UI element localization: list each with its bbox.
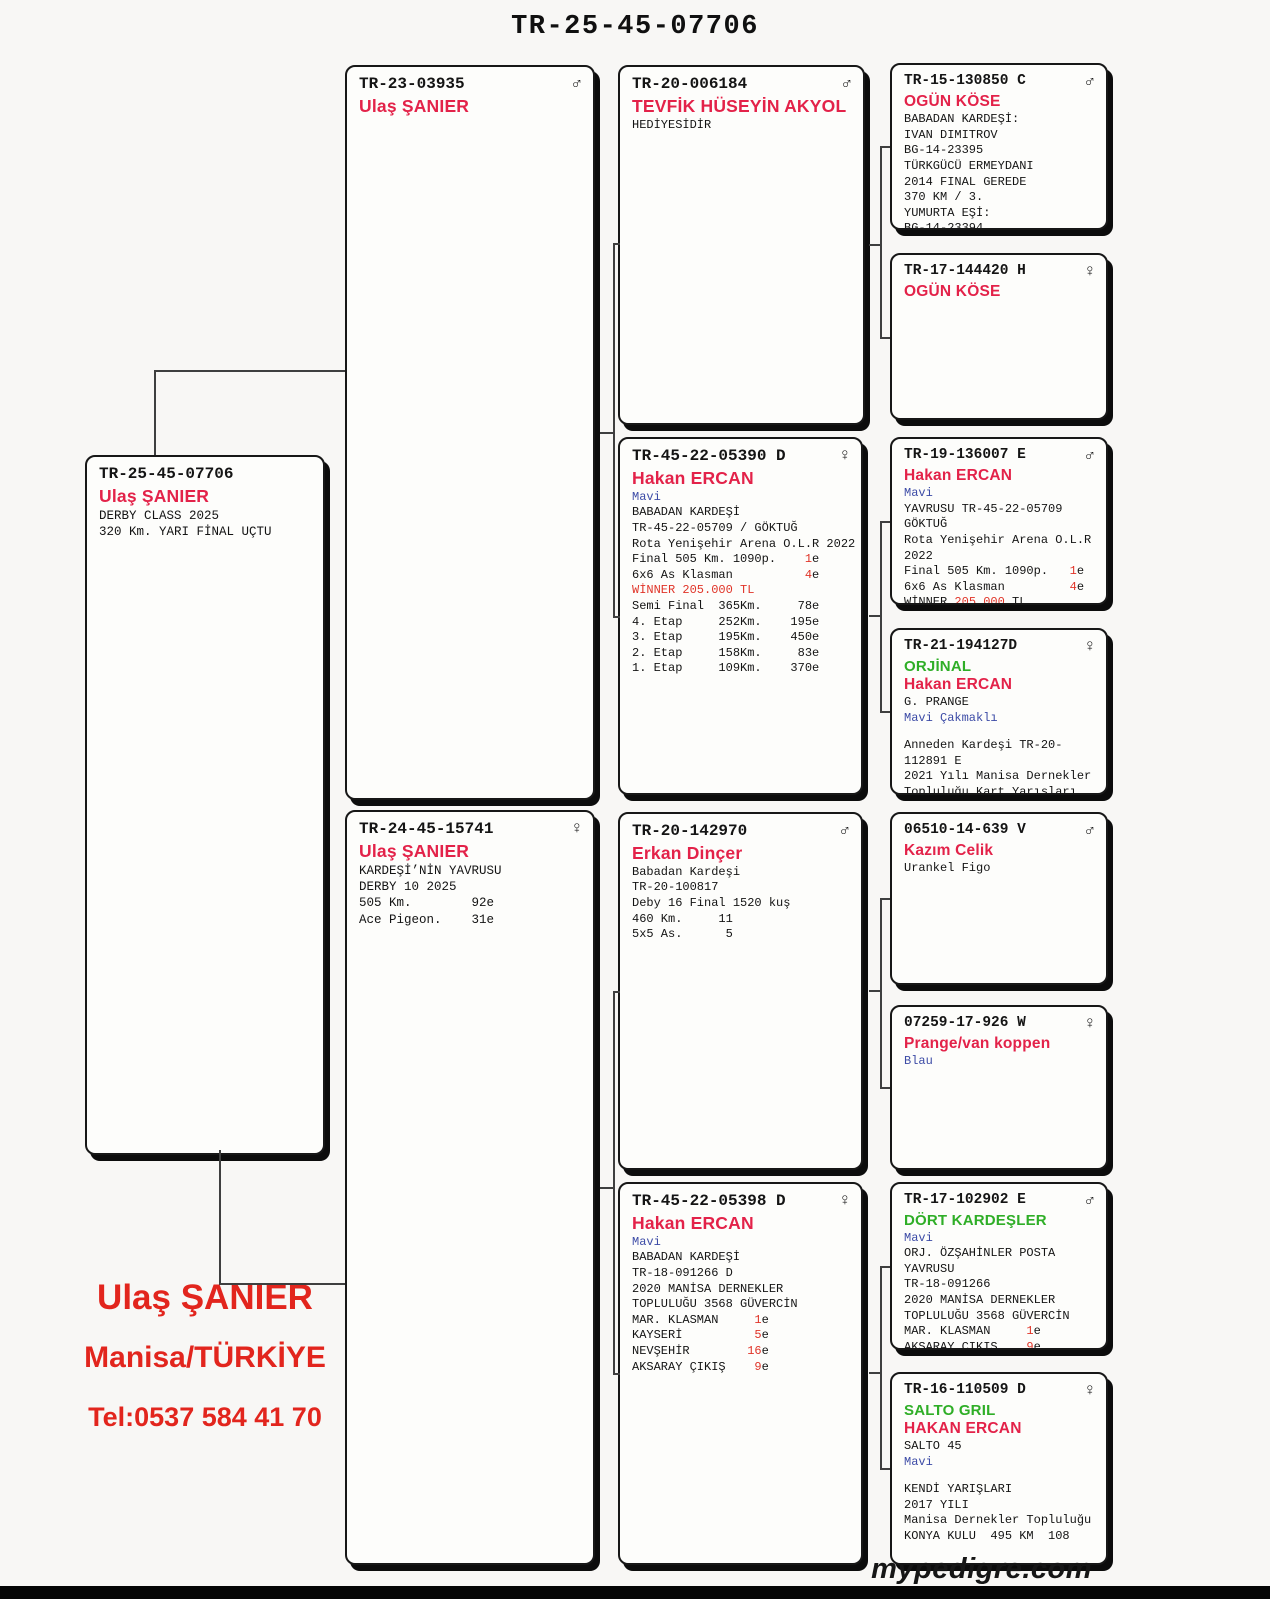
ring-number: TR-45-22-05390 D bbox=[632, 447, 786, 466]
info-line: 3. Etap 195Km. 450e bbox=[632, 630, 856, 646]
info-lines: Urankel Figo bbox=[904, 861, 1101, 877]
name-block: ORJİNALHakan ERCAN bbox=[904, 658, 1101, 694]
info-line: Urankel Figo bbox=[904, 861, 1101, 877]
sex-icon: ♀ bbox=[572, 820, 588, 838]
owner-contact-block: Ulaş ŞANIER Manisa/TÜRKİYE Tel:0537 584 … bbox=[70, 1280, 340, 1431]
connector-line bbox=[880, 898, 882, 1088]
name-block: SALTO GRILHAKAN ERCAN bbox=[904, 1402, 1101, 1438]
name-block: Ulaş ŞANIER bbox=[99, 486, 318, 507]
ring-number: TR-21-194127D bbox=[904, 638, 1017, 655]
name-block: Hakan ERCAN bbox=[632, 468, 856, 489]
ring-number: TR-19-136007 E bbox=[904, 447, 1026, 464]
pigeon-name: TEVFİK HÜSEYİN AKYOL bbox=[632, 96, 858, 117]
info-line: 370 KM / 3. bbox=[904, 190, 1101, 206]
connector-line bbox=[600, 432, 614, 434]
ring-number: TR-24-45-15741 bbox=[359, 820, 493, 839]
pedigree-box-ggp-1: TR-15-130850 C♂ OGÜN KÖSE BABADAN KARDEŞ… bbox=[890, 63, 1108, 230]
sex-icon: ♂ bbox=[1085, 447, 1101, 465]
sex-icon: ♂ bbox=[840, 822, 856, 840]
info-lines: MaviBABADAN KARDEŞİTR-45-22-05709 / GÖKT… bbox=[632, 490, 856, 677]
pigeon-name: HAKAN ERCAN bbox=[904, 1420, 1101, 1438]
info-line: 505 Km. 92e bbox=[359, 895, 588, 911]
name-block: Erkan Dinçer bbox=[632, 843, 856, 864]
info-lines: BABADAN KARDEŞİ:IVAN DIMITROVBG-14-23395… bbox=[904, 112, 1101, 230]
info-line: 320 Km. YARI FİNAL UÇTU bbox=[99, 524, 318, 540]
ring-number: TR-20-142970 bbox=[632, 822, 747, 841]
pigeon-name: Ulaş ŞANIER bbox=[359, 841, 588, 862]
info-line: DERBY CLASS 2025 bbox=[99, 508, 318, 524]
info-line: WİNNER 205.000 TL bbox=[904, 595, 1101, 605]
info-line: AKSARAY ÇIKIŞ 9e bbox=[632, 1360, 856, 1376]
info-line: 1. Etap 109Km. 370e bbox=[632, 661, 856, 677]
info-line: 6x6 As Klasman 4e bbox=[632, 568, 856, 584]
pigeon-name: Erkan Dinçer bbox=[632, 843, 856, 864]
info-lines: KARDEŞİ’NİN YAVRUSUDERBY 10 2025505 Km. … bbox=[359, 863, 588, 928]
info-line: Mavi bbox=[904, 1231, 1101, 1247]
sex-icon: ♀ bbox=[1085, 1382, 1101, 1400]
info-line: Mavi bbox=[632, 490, 856, 506]
info-line: 5x5 As. 5 bbox=[632, 927, 856, 943]
pedigree-box-ggp-8: TR-16-110509 D♀ SALTO GRILHAKAN ERCAN SA… bbox=[890, 1372, 1108, 1565]
sex-icon: ♀ bbox=[840, 447, 856, 465]
owner-location: Manisa/TÜRKİYE bbox=[70, 1343, 340, 1373]
info-line: DERBY 10 2025 bbox=[359, 879, 588, 895]
info-line: 6x6 As Klasman 4e bbox=[904, 580, 1101, 596]
info-lines: MaviYAVRUSU TR-45-22-05709GÖKTUĞRota Yen… bbox=[904, 486, 1101, 605]
info-lines: DERBY CLASS 2025320 Km. YARI FİNAL UÇTU bbox=[99, 508, 318, 541]
connector-line bbox=[613, 616, 620, 618]
connector-line bbox=[880, 1266, 882, 1469]
pedigree-box-sire: TR-23-03935♂ Ulaş ŞANIER bbox=[345, 65, 595, 800]
info-line: BABADAN KARDEŞİ bbox=[632, 1250, 856, 1266]
info-line: AKSARAY ÇIKIŞ 9e bbox=[904, 1340, 1101, 1350]
info-line: HEDİYESİDİR bbox=[632, 118, 858, 134]
info-line: BG-14-23395 bbox=[904, 143, 1101, 159]
owner-phone: Tel:0537 584 41 70 bbox=[70, 1404, 340, 1431]
info-line: TR-20-100817 bbox=[632, 880, 856, 896]
info-line: KARDEŞİ’NİN YAVRUSU bbox=[359, 863, 588, 879]
pedigree-box-ggp-6: 07259-17-926 W♀ Prange/van koppen Blau bbox=[890, 1005, 1108, 1170]
info-line: Semi Final 365Km. 78e bbox=[632, 599, 856, 615]
info-line: Manisa Dernekler Topluluğu bbox=[904, 1513, 1101, 1529]
info-line: ORJ. ÖZŞAHİNLER POSTA bbox=[904, 1246, 1101, 1262]
ring-number: TR-23-03935 bbox=[359, 75, 465, 94]
info-line: IVAN DIMITROV bbox=[904, 128, 1101, 144]
pigeon-name: SALTO GRIL bbox=[904, 1402, 1101, 1420]
sex-icon: ♀ bbox=[1085, 638, 1101, 656]
name-block: TEVFİK HÜSEYİN AKYOL bbox=[632, 96, 858, 117]
pedigree-box-ggp-3: TR-19-136007 E♂ Hakan ERCAN MaviYAVRUSU … bbox=[890, 437, 1108, 605]
pigeon-name: Hakan ERCAN bbox=[632, 468, 856, 489]
info-line bbox=[904, 1470, 1101, 1482]
connector-line bbox=[613, 1373, 620, 1375]
sex-icon: ♂ bbox=[1085, 73, 1101, 91]
info-line: TOPLULUĞU 3568 GÜVERCİN bbox=[904, 1309, 1101, 1325]
pigeon-name: Ulaş ŞANIER bbox=[99, 486, 318, 507]
pigeon-name: OGÜN KÖSE bbox=[904, 93, 1101, 111]
info-line: KAYSERİ 5e bbox=[632, 1328, 856, 1344]
info-line: Final 505 Km. 1090p. 1e bbox=[632, 552, 856, 568]
info-line: 112891 E bbox=[904, 754, 1101, 770]
name-block: OGÜN KÖSE bbox=[904, 283, 1101, 301]
info-line: 2022 bbox=[904, 549, 1101, 565]
info-line: BG-14-23394 bbox=[904, 221, 1101, 230]
info-line: Ace Pigeon. 31e bbox=[359, 912, 588, 928]
sex-icon bbox=[312, 465, 318, 466]
info-line: TR-18-091266 D bbox=[632, 1266, 856, 1282]
connector-line bbox=[613, 991, 615, 1374]
pedigree-box-ggp-4: TR-21-194127D♀ ORJİNALHakan ERCAN G. PRA… bbox=[890, 628, 1108, 795]
info-line: 2020 MANİSA DERNEKLER bbox=[904, 1293, 1101, 1309]
sex-icon: ♂ bbox=[842, 75, 858, 93]
connector-line bbox=[880, 146, 890, 148]
info-line: TOPLULUĞU 3568 GÜVERCİN bbox=[632, 1297, 856, 1313]
info-line: Mavi bbox=[632, 1235, 856, 1251]
name-block: Hakan ERCAN bbox=[632, 1213, 856, 1234]
pigeon-name: Kazım Celik bbox=[904, 842, 1101, 860]
info-line: Deby 16 Final 1520 kuş bbox=[632, 896, 856, 912]
info-line: Mavi Çakmaklı bbox=[904, 711, 1101, 727]
ring-number: 07259-17-926 W bbox=[904, 1015, 1026, 1032]
pedigree-box-paternal-granddam: TR-45-22-05390 D♀ Hakan ERCAN MaviBABADA… bbox=[618, 437, 863, 795]
info-line: Blau bbox=[904, 1054, 1101, 1070]
connector-line bbox=[880, 1468, 890, 1470]
pigeon-name: DÖRT KARDEŞLER bbox=[904, 1212, 1101, 1230]
info-line: MAR. KLASMAN 1e bbox=[632, 1313, 856, 1329]
connector-line bbox=[154, 370, 156, 455]
bottom-bar bbox=[0, 1586, 1270, 1599]
info-line: Rota Yenişehir Arena O.L.R 2022 bbox=[632, 537, 856, 553]
ring-number: TR-25-45-07706 bbox=[99, 465, 233, 484]
info-line: 2. Etap 158Km. 83e bbox=[632, 646, 856, 662]
info-line: 2014 FINAL GEREDE bbox=[904, 175, 1101, 191]
sex-icon: ♂ bbox=[1085, 822, 1101, 840]
pedigree-box-root: TR-25-45-07706 Ulaş ŞANIER DERBY CLASS 2… bbox=[85, 455, 325, 1155]
info-line: KENDİ YARIŞLARI bbox=[904, 1482, 1101, 1498]
ring-number: TR-16-110509 D bbox=[904, 1382, 1026, 1399]
connector-line bbox=[219, 1283, 345, 1285]
info-line: YAVRUSU TR-45-22-05709 bbox=[904, 502, 1101, 518]
info-lines: HEDİYESİDİR bbox=[632, 118, 858, 134]
info-line: BABADAN KARDEŞİ: bbox=[904, 112, 1101, 128]
pigeon-name: Hakan ERCAN bbox=[632, 1213, 856, 1234]
info-line: Topluluğu Kart Yarışları bbox=[904, 785, 1101, 795]
info-line: NEVŞEHİR 16e bbox=[632, 1344, 856, 1360]
ring-number: TR-20-006184 bbox=[632, 75, 747, 94]
info-line: TR-18-091266 bbox=[904, 1277, 1101, 1293]
ring-number: 06510-14-639 V bbox=[904, 822, 1026, 839]
connector-line bbox=[880, 146, 882, 338]
pedigree-box-dam: TR-24-45-15741♀ Ulaş ŞANIER KARDEŞİ’NİN … bbox=[345, 810, 595, 1565]
connector-line bbox=[880, 1266, 890, 1268]
info-line: 2017 YILI bbox=[904, 1498, 1101, 1514]
sex-icon: ♂ bbox=[1085, 1192, 1101, 1210]
info-lines: Babadan KardeşiTR-20-100817Deby 16 Final… bbox=[632, 865, 856, 943]
connector-line bbox=[880, 898, 890, 900]
info-line: BABADAN KARDEŞİ bbox=[632, 505, 856, 521]
info-line: YUMURTA EŞİ: bbox=[904, 206, 1101, 222]
info-line: Mavi bbox=[904, 486, 1101, 502]
connector-line bbox=[613, 243, 620, 245]
ring-number: TR-15-130850 C bbox=[904, 73, 1026, 90]
pedigree-box-paternal-grandsire: TR-20-006184♂ TEVFİK HÜSEYİN AKYOL HEDİY… bbox=[618, 65, 865, 425]
info-line: Final 505 Km. 1090p. 1e bbox=[904, 564, 1101, 580]
pedigree-box-ggp-5: 06510-14-639 V♂ Kazım Celik Urankel Figo bbox=[890, 812, 1108, 985]
pigeon-name: Hakan ERCAN bbox=[904, 676, 1101, 694]
pedigree-box-maternal-granddam: TR-45-22-05398 D♀ Hakan ERCAN MaviBABADA… bbox=[618, 1182, 863, 1565]
connector-line bbox=[880, 337, 890, 339]
info-line: GÖKTUĞ bbox=[904, 517, 1101, 533]
pigeon-name: Hakan ERCAN bbox=[904, 467, 1101, 485]
info-line: KONYA KULU 495 KM 108 bbox=[904, 1529, 1101, 1545]
connector-line bbox=[219, 1150, 221, 1283]
sex-icon: ♂ bbox=[572, 75, 588, 93]
name-block: DÖRT KARDEŞLER bbox=[904, 1212, 1101, 1230]
pigeon-name: Ulaş ŞANIER bbox=[359, 96, 588, 117]
info-line: TR-45-22-05709 / GÖKTUĞ bbox=[632, 521, 856, 537]
info-line: YAVRUSU bbox=[904, 1262, 1101, 1278]
ring-number: TR-45-22-05398 D bbox=[632, 1192, 786, 1211]
connector-line bbox=[600, 1187, 614, 1189]
connector-line bbox=[880, 521, 890, 523]
info-lines: SALTO 45MaviKENDİ YARIŞLARI2017 YILIMani… bbox=[904, 1439, 1101, 1545]
info-line: 460 Km. 11 bbox=[632, 912, 856, 928]
info-line: TÜRKGÜCÜ ERMEYDANI bbox=[904, 159, 1101, 175]
info-line: WİNNER 205.000 TL bbox=[632, 583, 856, 599]
info-line: 4. Etap 252Km. 195e bbox=[632, 615, 856, 631]
connector-line bbox=[154, 370, 345, 372]
ring-number: TR-17-144420 H bbox=[904, 263, 1026, 280]
mypedigre-logo: mypedigre.com bbox=[871, 1553, 1092, 1586]
pedigree-box-maternal-grandsire: TR-20-142970♂ Erkan Dinçer Babadan Karde… bbox=[618, 812, 863, 1170]
connector-line bbox=[880, 1087, 890, 1089]
pedigree-box-ggp-7: TR-17-102902 E♂ DÖRT KARDEŞLER MaviORJ. … bbox=[890, 1182, 1108, 1350]
name-block: Kazım Celik bbox=[904, 842, 1101, 860]
info-line: Babadan Kardeşi bbox=[632, 865, 856, 881]
name-block: Ulaş ŞANIER bbox=[359, 96, 588, 117]
page-title: TR-25-45-07706 bbox=[0, 12, 1270, 42]
sex-icon: ♀ bbox=[1085, 263, 1101, 281]
connector-line bbox=[880, 711, 890, 713]
pigeon-name: Prange/van koppen bbox=[904, 1035, 1101, 1053]
info-line: SALTO 45 bbox=[904, 1439, 1101, 1455]
info-lines: MaviBABADAN KARDEŞİTR-18-091266 D2020 MA… bbox=[632, 1235, 856, 1375]
name-block: OGÜN KÖSE bbox=[904, 93, 1101, 111]
connector-line bbox=[613, 243, 615, 617]
info-line: Anneden Kardeşi TR-20- bbox=[904, 738, 1101, 754]
info-lines: G. PRANGEMavi ÇakmaklıAnneden Kardeşi TR… bbox=[904, 695, 1101, 795]
pedigree-page: TR-25-45-07706 TR-25-45-07706 Ulaş ŞANIE… bbox=[0, 0, 1270, 1599]
info-line: 2021 Yılı Manisa Dernekler bbox=[904, 769, 1101, 785]
info-lines: MaviORJ. ÖZŞAHİNLER POSTAYAVRUSUTR-18-09… bbox=[904, 1231, 1101, 1350]
name-block: Ulaş ŞANIER bbox=[359, 841, 588, 862]
pedigree-box-ggp-2: TR-17-144420 H♀ OGÜN KÖSE bbox=[890, 253, 1108, 420]
info-line: Rota Yenişehir Arena O.L.R bbox=[904, 533, 1101, 549]
name-block: Prange/van koppen bbox=[904, 1035, 1101, 1053]
connector-line bbox=[613, 991, 620, 993]
info-line bbox=[904, 726, 1101, 738]
pigeon-name: ORJİNAL bbox=[904, 658, 1101, 676]
owner-name: Ulaş ŞANIER bbox=[70, 1280, 340, 1315]
sex-icon: ♀ bbox=[1085, 1015, 1101, 1033]
info-line: MAR. KLASMAN 1e bbox=[904, 1324, 1101, 1340]
name-block: Hakan ERCAN bbox=[904, 467, 1101, 485]
info-line: 2020 MANİSA DERNEKLER bbox=[632, 1282, 856, 1298]
info-lines: Blau bbox=[904, 1054, 1101, 1070]
connector-line bbox=[880, 521, 882, 712]
pigeon-name: OGÜN KÖSE bbox=[904, 283, 1101, 301]
info-line: Mavi bbox=[904, 1455, 1101, 1471]
info-line: G. PRANGE bbox=[904, 695, 1101, 711]
sex-icon: ♀ bbox=[840, 1192, 856, 1210]
ring-number: TR-17-102902 E bbox=[904, 1192, 1026, 1209]
